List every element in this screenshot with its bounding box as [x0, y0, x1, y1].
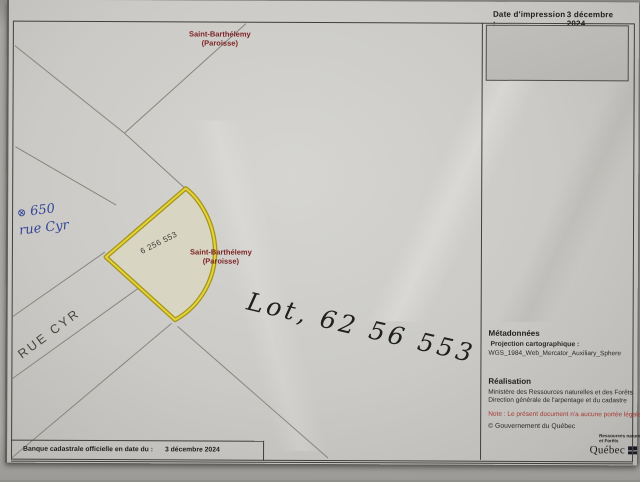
municipality-type: (Paroisse) [176, 256, 266, 265]
quebec-wordmark: Québec [590, 444, 625, 456]
realisation-org: Ministère des Ressources naturelles et d… [488, 389, 633, 397]
realisation-section-title: Réalisation [488, 377, 531, 386]
realisation-dept: Direction générale de l'arpentage et du … [488, 397, 627, 405]
municipality-name: Saint-Barthélemy [176, 247, 266, 256]
municipality-label-top: Saint-Barthélemy (Paroisse) [175, 29, 265, 47]
municipality-type: (Paroisse) [175, 38, 265, 47]
legal-note: Note : Le présent document n'a aucune po… [488, 411, 640, 419]
circled-x-mark-icon: ⊗ [16, 206, 27, 220]
handwritten-address-note: ⊗650 rue Cyr [16, 199, 70, 241]
metadata-section-title: Métadonnées [489, 329, 540, 338]
cadastral-map-paper: Saint-Barthélemy (Paroisse) Saint-Barthé… [5, 0, 639, 465]
logo-ministry-line2: et Forêts [599, 438, 639, 443]
cadastral-bank-label: Banque cadastrale officielle en date du … [23, 446, 153, 454]
municipality-name: Saint-Barthélemy [175, 29, 265, 38]
projection-value: WGS_1984_Web_Mercator_Auxiliary_Sphere [488, 350, 621, 358]
overview-map-placeholder [486, 25, 629, 82]
cadastral-bank-date-row: Banque cadastrale officielle en date du … [23, 446, 220, 454]
quebec-government-logo: Ressources naturelles et Forêts Québec [567, 433, 639, 456]
copyright-line: © Gouvernement du Québec [488, 423, 575, 430]
projection-label: Projection cartographique : [490, 341, 579, 348]
municipality-label-center: Saint-Barthélemy (Paroisse) [176, 247, 266, 265]
cadastral-bank-value: 3 décembre 2024 [165, 446, 220, 453]
quebec-flag-icon [628, 446, 637, 454]
